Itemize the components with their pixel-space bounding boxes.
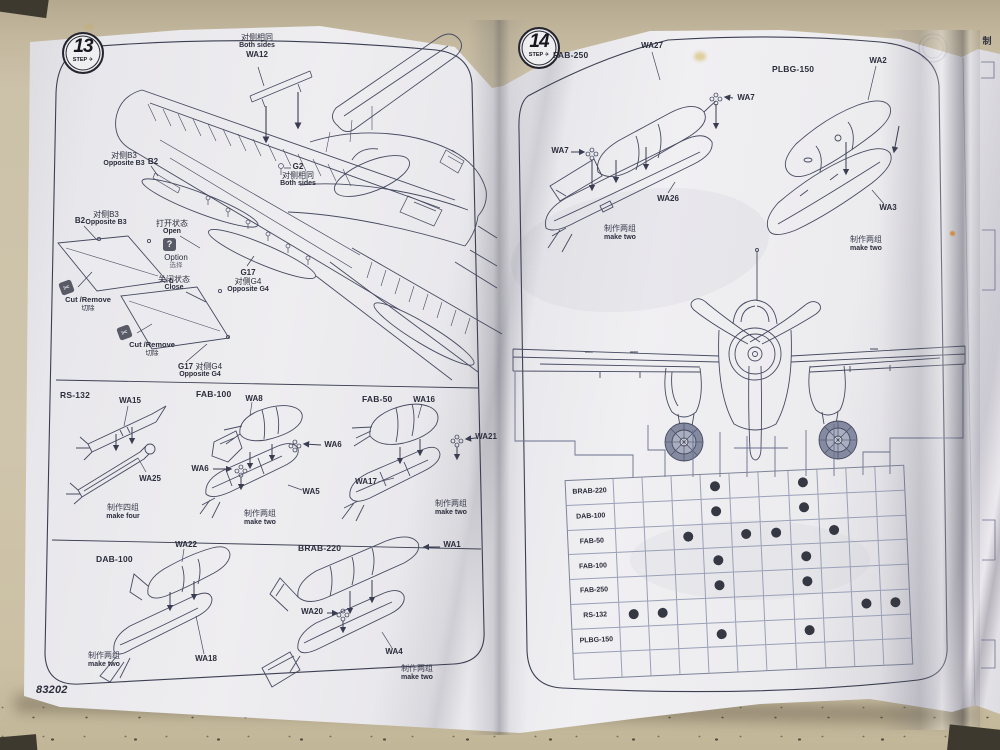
loadout-dot xyxy=(801,551,811,561)
table-cell xyxy=(824,617,854,643)
table-cell xyxy=(733,546,763,572)
part-label-wa3: WA3 xyxy=(879,203,896,212)
annotation-g17-bottom: G17 对侧G4 Opposite G4 xyxy=(178,362,222,379)
loadout-dot xyxy=(804,625,814,635)
table-cell xyxy=(817,468,847,494)
loadout-dot xyxy=(658,607,668,617)
table-cell xyxy=(709,647,739,673)
table-cell xyxy=(880,565,909,591)
table-cell xyxy=(820,543,850,569)
part-label-wa7-right: WA7 xyxy=(737,93,754,102)
part-label-wa7-left: WA7 xyxy=(551,146,568,155)
loadout-dot xyxy=(715,580,725,590)
table-cell xyxy=(737,621,767,647)
quantity-note-brab220: 制作两组 make two xyxy=(401,664,433,682)
table-cell xyxy=(650,649,680,675)
photo-corner-shadow xyxy=(947,724,1000,750)
table-cell xyxy=(615,502,645,528)
table-cell xyxy=(673,500,703,526)
photo-of-instruction-sheet: 13 STEP ✈ 对侧相同 Both sides WA12 对侧B3 Oppo… xyxy=(0,0,1000,750)
group-name-brab220: BRAB-220 xyxy=(298,543,341,553)
table-cell xyxy=(876,490,905,516)
table-cell xyxy=(704,548,734,574)
plane-icon: ✈ xyxy=(89,57,94,63)
table-cell xyxy=(618,576,648,602)
table-row-label: FAB-100 xyxy=(569,553,618,580)
loadout-dot xyxy=(798,502,808,512)
part-label-wa18: WA18 xyxy=(195,654,217,663)
loadout-dot xyxy=(629,609,639,619)
table-cell xyxy=(648,600,678,626)
next-page-edge-content xyxy=(963,58,995,705)
table-cell xyxy=(819,518,849,544)
table-cell xyxy=(735,596,765,622)
part-label-wa5: WA5 xyxy=(302,487,319,496)
table-cell xyxy=(767,644,797,670)
part-label-wa4: WA4 xyxy=(385,647,402,656)
annotation-opposite-b3-left: 对侧B3 Opposite B3 xyxy=(85,210,126,227)
table-cell xyxy=(732,522,762,548)
step-number: 14 xyxy=(520,32,558,52)
part-label-wa17: WA17 xyxy=(355,477,377,486)
table-cell xyxy=(614,478,644,504)
table-cell xyxy=(821,567,851,593)
table-cell xyxy=(619,601,649,627)
annotation-g2-both-sides: G2 对侧相同 Both sides xyxy=(280,162,316,188)
annotation-close-state: 关闭状态 Close xyxy=(158,275,190,292)
part-label-wa12: WA12 xyxy=(239,50,275,59)
table-row-label: BRAB-220 xyxy=(566,479,615,506)
table-cell xyxy=(643,476,673,502)
loadout-dot xyxy=(713,555,723,565)
group-name-dab100: DAB-100 xyxy=(96,554,133,564)
table-row-label: FAB-50 xyxy=(568,528,617,555)
part-label-wa26: WA26 xyxy=(657,194,679,203)
part-label-wa2: WA2 xyxy=(869,56,886,65)
quantity-note-dab100: 制作两组 make two xyxy=(88,651,120,669)
table-cell xyxy=(846,467,876,493)
part-label-wa6-left: WA6 xyxy=(191,464,208,473)
table-row-label: FAB-250 xyxy=(570,578,619,605)
table-cell xyxy=(646,550,676,576)
part-label-wa15: WA15 xyxy=(119,396,141,405)
quantity-note-rs132: 制作四组 make four xyxy=(106,503,139,521)
table-cell xyxy=(852,591,882,617)
paper-stain xyxy=(950,231,955,236)
table-cell xyxy=(851,566,881,592)
table-cell xyxy=(878,540,907,566)
table-cell xyxy=(703,523,733,549)
table-cell xyxy=(761,520,791,546)
table-cell xyxy=(621,651,651,677)
table-cell xyxy=(790,519,820,545)
table-cell xyxy=(853,615,883,641)
table-cell xyxy=(794,593,824,619)
table-cell xyxy=(877,515,906,541)
table-cell xyxy=(854,640,884,666)
table-cell xyxy=(788,470,818,496)
paper-stain xyxy=(84,24,94,30)
annotation-both-sides-wa12: 对侧相同 Both sides WA12 xyxy=(239,33,275,59)
loadout-dot xyxy=(861,598,871,608)
table-cell xyxy=(674,524,704,550)
table-cell xyxy=(882,614,911,640)
table-cell xyxy=(677,599,707,625)
table-cell xyxy=(620,626,650,652)
paper-stain xyxy=(694,52,706,61)
plane-icon: ✈ xyxy=(545,52,550,58)
photo-corner-shadow xyxy=(0,734,38,750)
table-cell xyxy=(881,589,910,615)
annotation-open-state: 打开状态 Open xyxy=(156,219,188,236)
part-label-g2: G2 xyxy=(280,162,316,171)
annotation-g17-right: G17 对侧G4 Opposite G4 xyxy=(227,268,269,294)
table-cell xyxy=(849,541,879,567)
part-label-b2-left: B2 xyxy=(75,216,85,225)
part-label-wa6-right: WA6 xyxy=(324,440,341,449)
loadout-table: BRAB-220DAB-100FAB-50FAB-100FAB-250RS-13… xyxy=(565,465,914,680)
table-cell xyxy=(825,641,855,667)
loadout-dot xyxy=(741,529,751,539)
table-cell xyxy=(649,625,679,651)
table-row-label: RS-132 xyxy=(571,603,620,630)
table-cell xyxy=(731,497,761,523)
table-cell xyxy=(763,570,793,596)
product-code: 83202 xyxy=(36,684,68,696)
table-cell xyxy=(734,571,764,597)
table-cell xyxy=(706,597,736,623)
part-label-wa1: WA1 xyxy=(443,540,460,549)
part-label-g17: G17 xyxy=(227,268,269,277)
group-name-fab50: FAB-50 xyxy=(362,394,393,404)
loadout-dot xyxy=(711,506,721,516)
table-cell xyxy=(644,501,674,527)
group-name-fab100: FAB-100 xyxy=(196,389,231,399)
table-cell xyxy=(675,549,705,575)
quantity-note-plbg150: 制作两组 make two xyxy=(850,235,882,253)
table-cell xyxy=(616,527,646,553)
table-cell xyxy=(789,494,819,520)
loadout-dot xyxy=(890,597,900,607)
table-cell xyxy=(796,643,826,669)
part-label-wa22: WA22 xyxy=(175,540,197,549)
table-cell xyxy=(760,496,790,522)
table-cell xyxy=(738,645,768,671)
table-cell xyxy=(701,474,731,500)
part-label-wa8: WA8 xyxy=(245,394,262,403)
table-cell xyxy=(848,516,878,542)
table-cell xyxy=(730,472,760,498)
table-row-label: DAB-100 xyxy=(567,504,616,531)
annotation-cut-remove-2: Cut /Remove 切除 xyxy=(129,341,175,357)
table-cell xyxy=(680,648,710,674)
step-14-badge: 14 STEP ✈ xyxy=(518,27,560,69)
table-cell xyxy=(647,575,677,601)
table-cell xyxy=(759,471,789,497)
table-cell xyxy=(678,623,708,649)
table-cell xyxy=(766,619,796,645)
table-cell xyxy=(823,592,853,618)
loadout-dot xyxy=(683,532,693,542)
step-13-badge: 13 STEP ✈ xyxy=(62,32,104,74)
next-page-edge-character: 制 xyxy=(982,34,991,47)
quantity-note-fab50: 制作两组 make two xyxy=(435,499,467,517)
table-cell xyxy=(791,544,821,570)
table-cell xyxy=(875,466,904,492)
quantity-note-fab100: 制作两组 make two xyxy=(244,509,276,527)
option-question-icon: ? xyxy=(163,238,176,251)
part-label-wa20: WA20 xyxy=(301,607,323,616)
table-cell xyxy=(707,622,737,648)
table-cell xyxy=(645,526,675,552)
table-cell xyxy=(672,475,702,501)
loadout-dot xyxy=(710,481,720,491)
table-cell xyxy=(762,545,792,571)
table-cell xyxy=(617,552,647,578)
part-label-wa27: WA27 xyxy=(641,41,663,50)
loadout-dot xyxy=(829,525,839,535)
part-label-b2-top: B2 xyxy=(148,157,158,166)
annotation-opposite-b3-top: 对侧B3 Opposite B3 xyxy=(103,151,144,168)
step-label: STEP xyxy=(73,57,87,63)
table-cell xyxy=(705,573,735,599)
part-label-wa25: WA25 xyxy=(139,474,161,483)
step-number: 13 xyxy=(64,37,102,57)
annotation-option: Option 选择 xyxy=(164,253,188,270)
group-name-fab250: FAB-250 xyxy=(553,50,588,60)
table-cell xyxy=(818,493,848,519)
table-cell xyxy=(883,639,912,665)
table-cell xyxy=(795,618,825,644)
step-label: STEP xyxy=(529,52,543,58)
loadout-dot xyxy=(717,629,727,639)
loadout-dot xyxy=(770,528,780,538)
group-name-plbg150: PLBG-150 xyxy=(772,64,814,74)
table-cell xyxy=(847,492,877,518)
quantity-note-fab250: 制作两组 make two xyxy=(604,224,636,242)
group-name-rs132: RS-132 xyxy=(60,390,90,400)
loadout-table-body: BRAB-220DAB-100FAB-50FAB-100FAB-250RS-13… xyxy=(566,466,913,679)
table-row-label xyxy=(573,652,622,679)
annotation-cut-remove-1: Cut /Remove 切除 xyxy=(65,296,111,312)
part-label-wa21: WA21 xyxy=(475,432,497,441)
table-cell xyxy=(764,595,794,621)
table-cell xyxy=(676,574,706,600)
part-label-wa16: WA16 xyxy=(413,395,435,404)
part-label-g17: G17 xyxy=(178,362,193,371)
station-connector-lines xyxy=(515,364,963,477)
table-row-label: PLBG-150 xyxy=(572,627,621,654)
loadout-dot xyxy=(802,576,812,586)
loadout-dot xyxy=(797,477,807,487)
table-cell xyxy=(702,498,732,524)
table-cell xyxy=(792,569,822,595)
